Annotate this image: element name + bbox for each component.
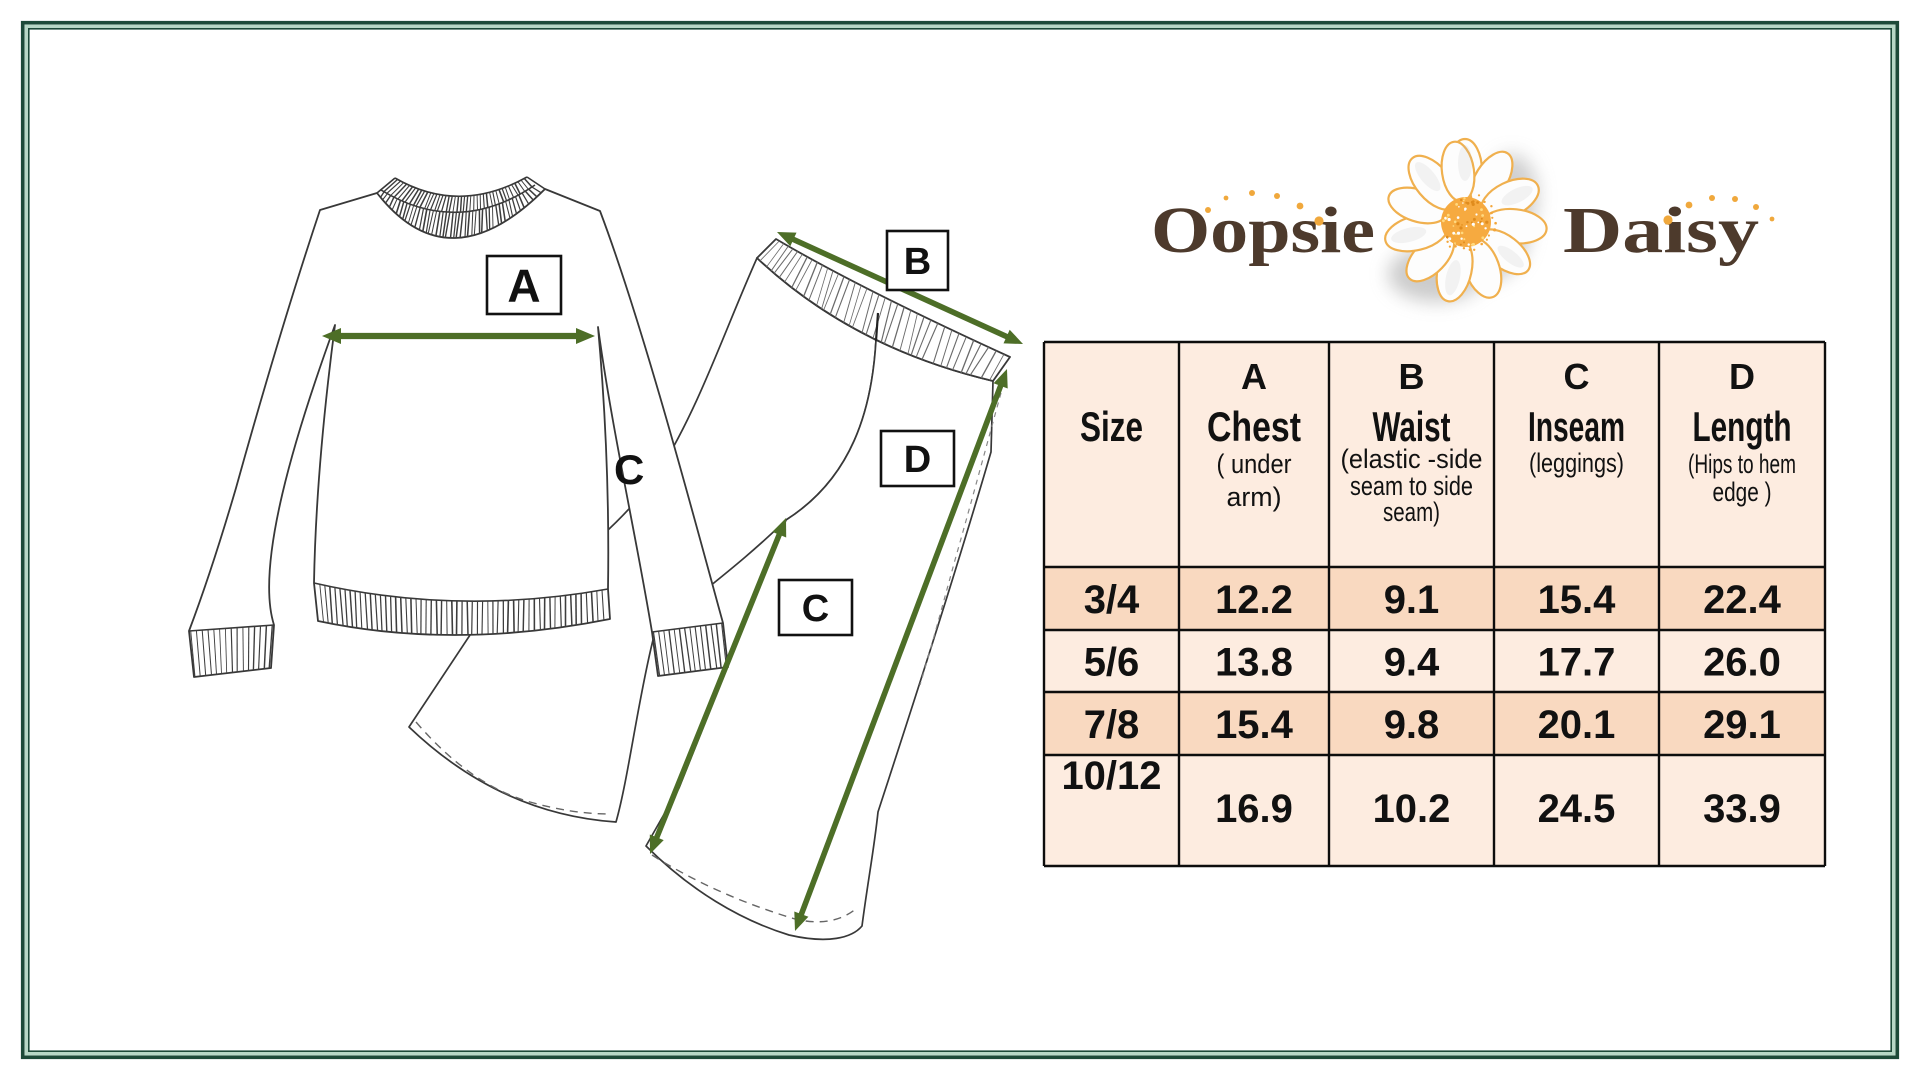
svg-text:Daisy: Daisy	[1563, 194, 1759, 267]
svg-text:10/12: 10/12	[1061, 754, 1161, 798]
svg-text:(Hips to hem: (Hips to hem	[1688, 449, 1796, 479]
svg-text:A: A	[1241, 356, 1267, 397]
svg-text:(elastic -side: (elastic -side	[1341, 444, 1483, 474]
svg-text:9.1: 9.1	[1384, 578, 1440, 622]
svg-text:C: C	[802, 588, 829, 630]
svg-text:5/6: 5/6	[1084, 641, 1140, 685]
svg-text:15.4: 15.4	[1215, 703, 1294, 747]
svg-text:Waist: Waist	[1373, 403, 1451, 450]
svg-text:A: A	[507, 260, 540, 312]
svg-text:9.8: 9.8	[1384, 703, 1440, 747]
svg-text:B: B	[904, 241, 931, 283]
svg-text:29.1: 29.1	[1703, 703, 1781, 747]
svg-text:arm): arm)	[1227, 482, 1282, 512]
svg-text:Chest: Chest	[1207, 403, 1301, 450]
svg-text:C: C	[1564, 356, 1590, 397]
svg-text:( under: ( under	[1217, 449, 1292, 479]
svg-text:B: B	[1399, 356, 1425, 397]
svg-text:Oopsie: Oopsie	[1151, 194, 1375, 267]
svg-text:26.0: 26.0	[1703, 641, 1781, 685]
svg-text:24.5: 24.5	[1538, 787, 1616, 831]
svg-text:13.8: 13.8	[1215, 641, 1293, 685]
svg-text:33.9: 33.9	[1703, 787, 1781, 831]
svg-text:D: D	[1729, 356, 1755, 397]
svg-text:7/8: 7/8	[1084, 703, 1140, 747]
svg-text:C: C	[614, 446, 644, 493]
svg-text:D: D	[904, 439, 931, 481]
svg-text:9.4: 9.4	[1384, 641, 1440, 685]
svg-text:16.9: 16.9	[1215, 787, 1293, 831]
svg-text:12.2: 12.2	[1215, 578, 1293, 622]
svg-text:edge ): edge )	[1713, 477, 1772, 507]
svg-text:3/4: 3/4	[1084, 578, 1140, 622]
svg-text:Inseam: Inseam	[1528, 403, 1625, 450]
svg-text:15.4: 15.4	[1538, 578, 1617, 622]
svg-text:17.7: 17.7	[1538, 641, 1616, 685]
svg-text:Length: Length	[1693, 403, 1792, 450]
svg-text:10.2: 10.2	[1373, 787, 1451, 831]
svg-text:20.1: 20.1	[1538, 703, 1616, 747]
svg-text:22.4: 22.4	[1703, 578, 1782, 622]
svg-text:(leggings): (leggings)	[1529, 448, 1624, 478]
svg-text:seam): seam)	[1383, 497, 1440, 527]
svg-text:Size: Size	[1080, 403, 1143, 450]
